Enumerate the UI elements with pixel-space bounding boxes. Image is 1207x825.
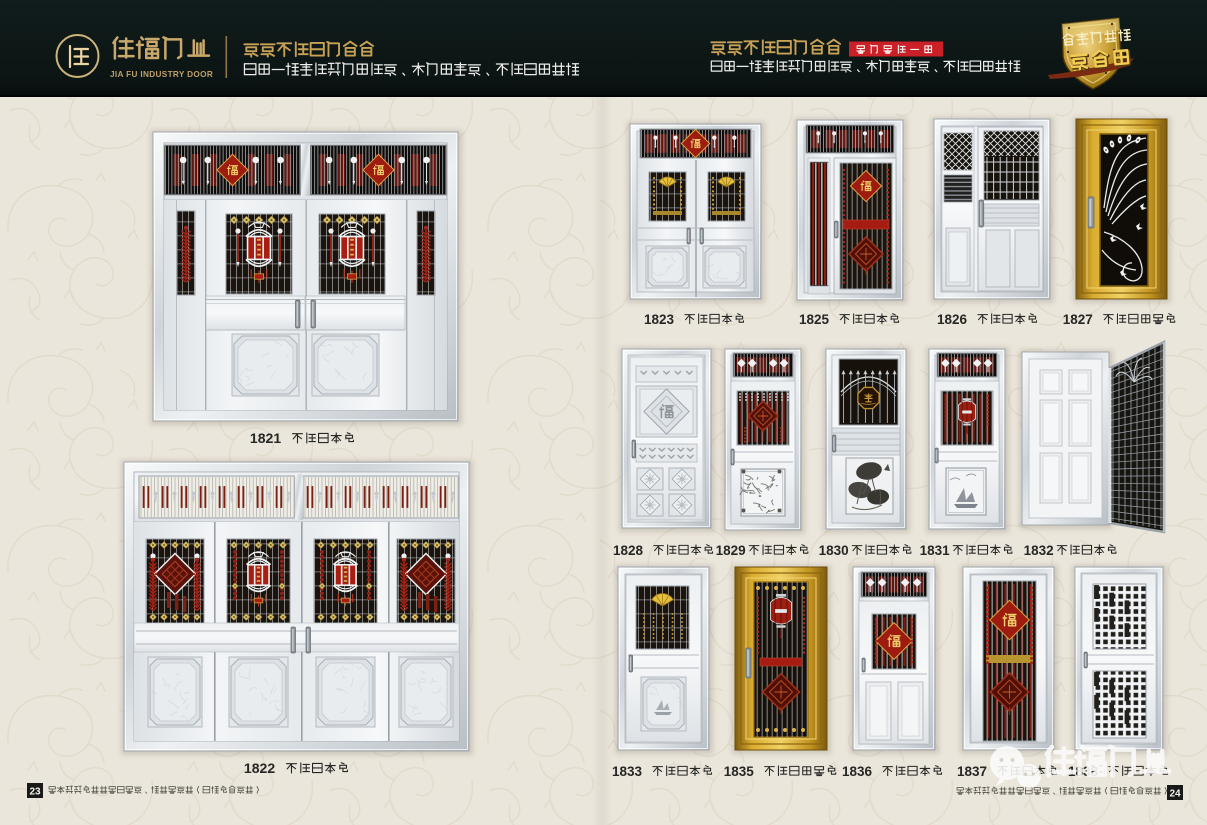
svg-text:1836: 1836 — [842, 764, 873, 779]
svg-text:1830: 1830 — [819, 543, 849, 558]
svg-text:1832: 1832 — [1024, 543, 1054, 558]
svg-text:23: 23 — [29, 787, 41, 798]
svg-text:1833: 1833 — [612, 764, 643, 779]
svg-text:1827: 1827 — [1063, 312, 1093, 327]
svg-text:1837: 1837 — [957, 764, 987, 779]
svg-text:1835: 1835 — [724, 764, 755, 779]
svg-text:1831: 1831 — [920, 543, 951, 558]
svg-text:1826: 1826 — [937, 312, 968, 327]
svg-text:1825: 1825 — [799, 312, 830, 327]
svg-text:24: 24 — [1169, 789, 1181, 800]
svg-text:1821: 1821 — [250, 430, 281, 446]
svg-text:1829: 1829 — [716, 543, 746, 558]
svg-text:1828: 1828 — [613, 543, 644, 558]
svg-text:1822: 1822 — [244, 760, 275, 776]
svg-text:1823: 1823 — [644, 312, 675, 327]
svg-text:JIA FU INDUSTRY DOOR: JIA FU INDUSTRY DOOR — [110, 70, 213, 79]
